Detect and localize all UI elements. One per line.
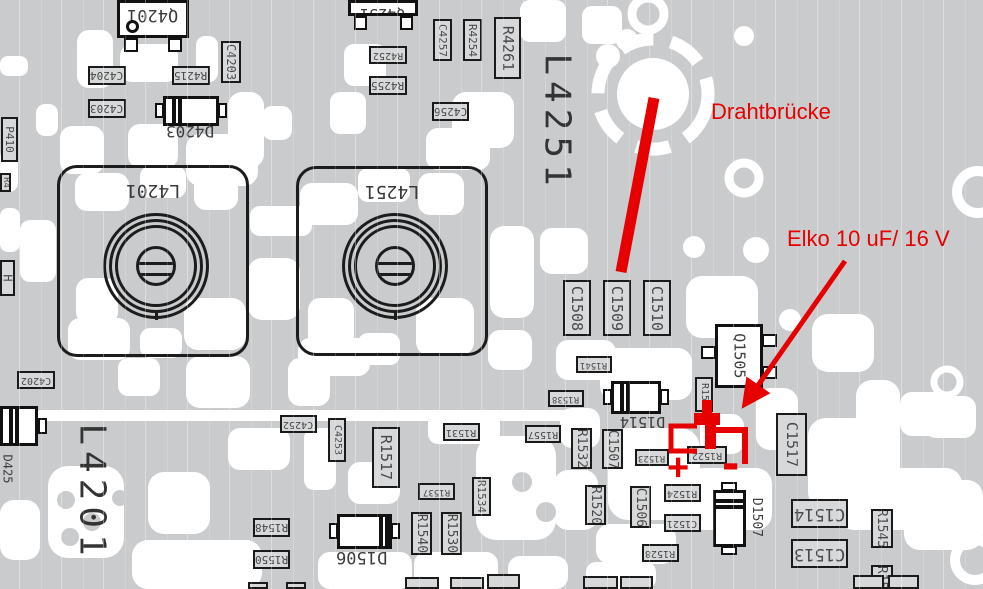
plus-polarity-sign: + [667,449,689,487]
pcb-layout-diagram: C4204R4215C4203C4203R4252R4255C4256C4257… [0,0,983,589]
red-annotation-layer [0,0,983,589]
minus-polarity-sign: - [722,437,739,489]
wire-bridge-annotation: Drahtbrücke [711,99,831,125]
elko-capacitor-annotation: Elko 10 uF/ 16 V [787,226,950,252]
